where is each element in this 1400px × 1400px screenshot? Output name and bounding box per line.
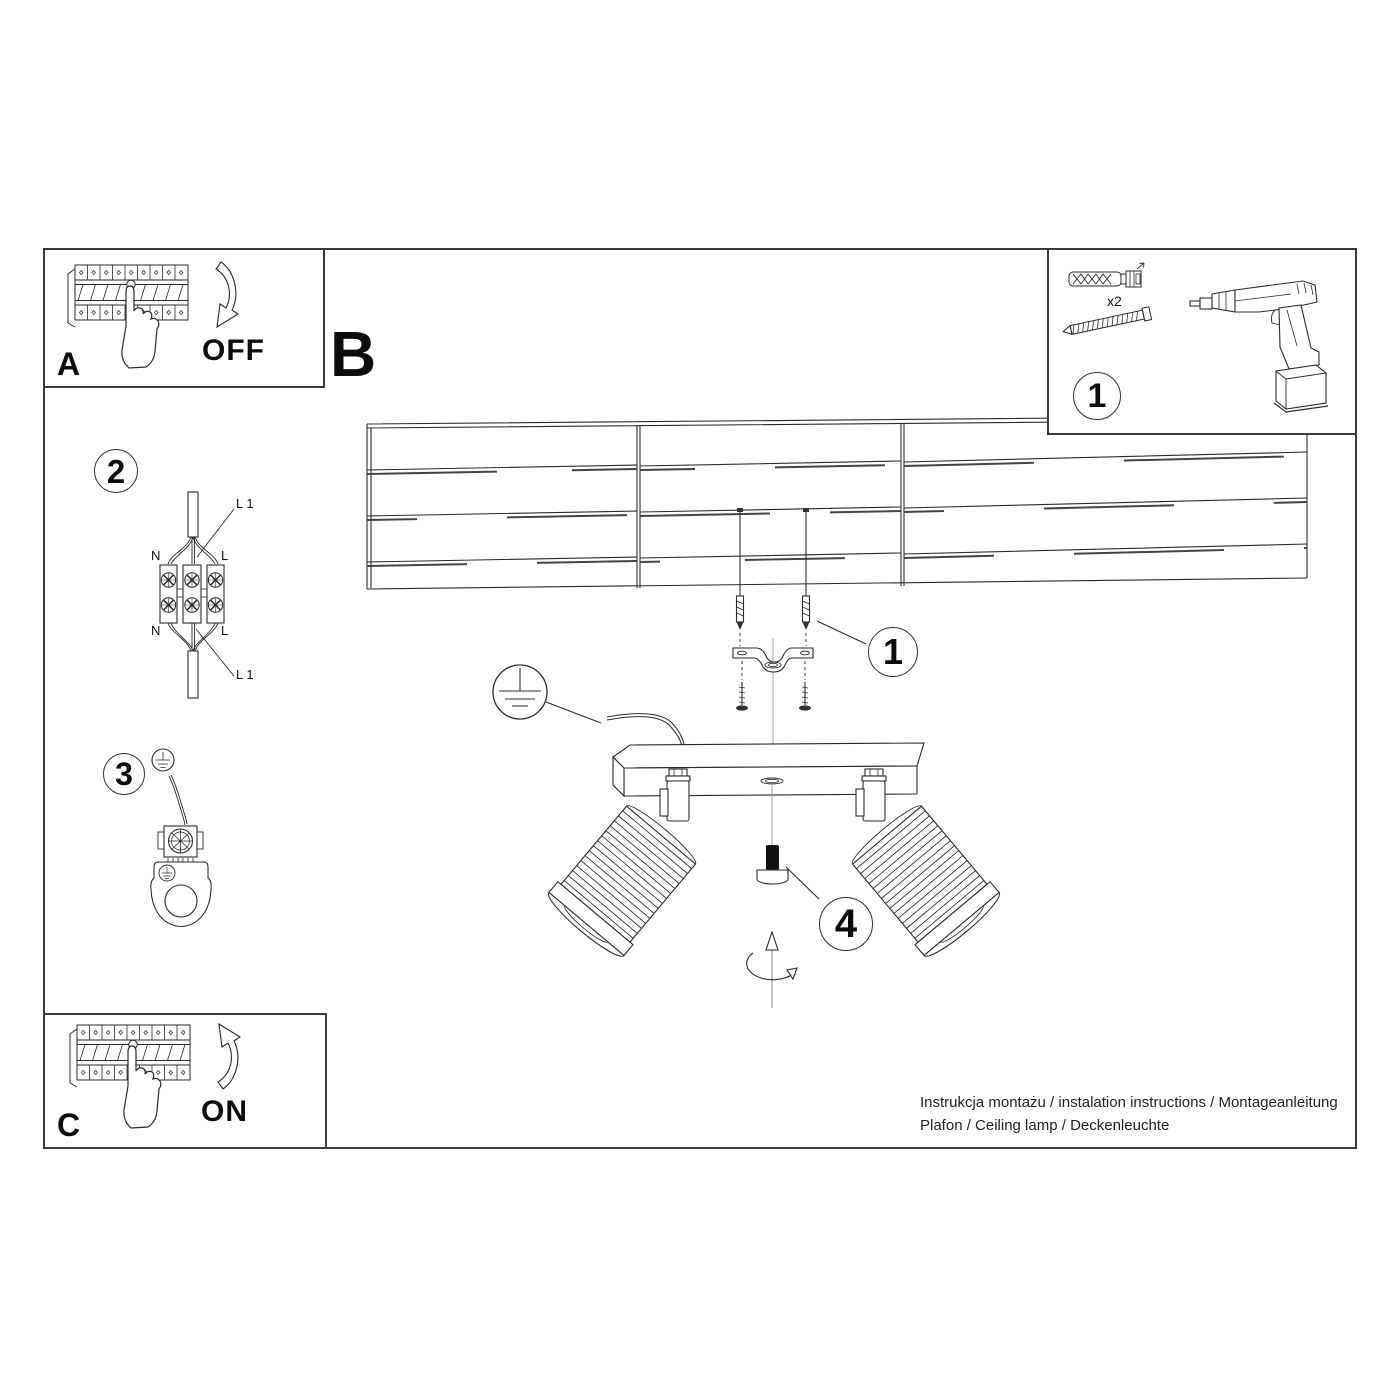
circuit-breaker-icon [70, 1025, 190, 1128]
off-label: OFF [202, 336, 265, 366]
curved-arrow-up-icon [218, 1024, 240, 1089]
instruction-sheet: A OFF B [0, 0, 1400, 1400]
mounting-screw-icon [1062, 307, 1152, 338]
curved-arrow-down-icon [216, 262, 238, 327]
panel-tools: x2 1 [1047, 248, 1357, 435]
circuit-breaker-icon [68, 265, 188, 368]
panel-c: C ON [43, 1013, 327, 1149]
callout-step-4: 4 [819, 897, 873, 951]
footer-instructions-line: Instrukcja montażu / instalation instruc… [920, 1095, 1338, 1112]
screw-quantity-label: x2 [1107, 294, 1122, 308]
wire-label-l1-bottom: L 1 [236, 668, 254, 681]
callout-step-1-tools-number: 1 [1088, 379, 1107, 413]
panel-b-letter: B [330, 322, 376, 386]
callout-step-3: 3 [103, 753, 145, 795]
callout-step-3-number: 3 [115, 758, 133, 790]
wall-plug-icon [1069, 263, 1144, 287]
panel-c-art [45, 1015, 325, 1147]
panel-c-letter: C [57, 1109, 80, 1141]
callout-step-1: 1 [868, 627, 918, 677]
wire-label-l-top: L [221, 549, 228, 562]
callout-step-4-number: 4 [835, 904, 857, 944]
callout-step-1-tools: 1 [1073, 372, 1121, 420]
on-label: ON [201, 1097, 248, 1127]
callout-step-2-number: 2 [107, 455, 125, 488]
wire-label-n-top: N [151, 549, 160, 562]
wire-label-l-bottom: L [221, 624, 228, 637]
panel-a-letter: A [57, 348, 80, 380]
panel-a-art [45, 250, 323, 386]
callout-step-2: 2 [94, 449, 138, 493]
wire-label-n-bottom: N [151, 624, 160, 637]
wire-label-l1-top: L 1 [236, 497, 254, 510]
panel-a: A OFF [43, 248, 325, 388]
footer-product-line: Plafon / Ceiling lamp / Deckenleuchte [920, 1118, 1169, 1135]
callout-step-1-number: 1 [883, 634, 903, 670]
cordless-drill-icon [1190, 281, 1328, 412]
